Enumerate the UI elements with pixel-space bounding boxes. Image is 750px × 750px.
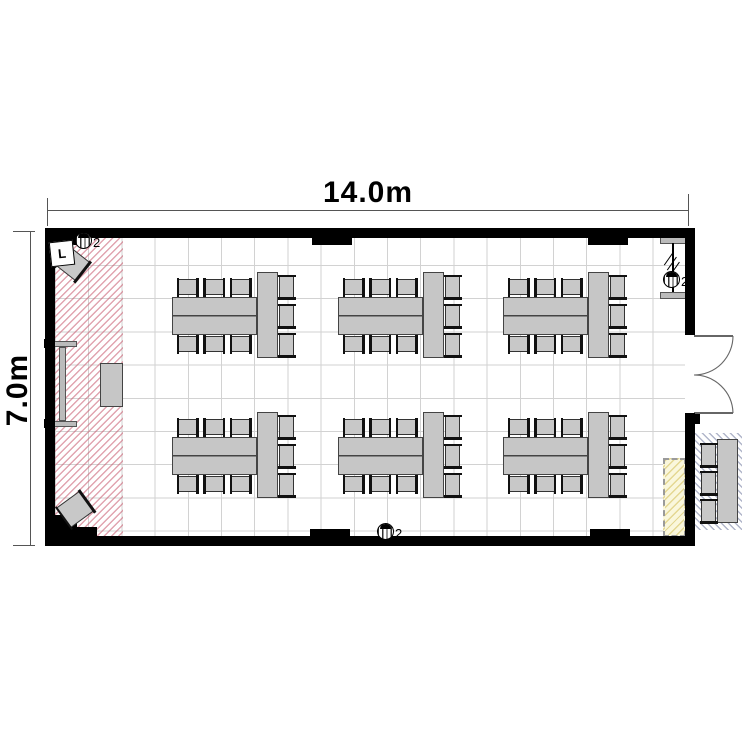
chair (343, 419, 364, 435)
outlet-symbol-bottom: 2 (377, 523, 402, 540)
chair (396, 419, 417, 435)
meeting-table-end (257, 412, 278, 498)
chair (343, 476, 364, 492)
chair (445, 444, 460, 468)
meeting-table-end (588, 272, 609, 358)
chair (370, 476, 391, 492)
top-dimension-line (47, 210, 688, 211)
annex-chair (701, 499, 716, 523)
chair (508, 476, 529, 492)
meeting-table-double (338, 437, 423, 475)
wall-right-lower (685, 413, 695, 546)
meeting-table-end (588, 412, 609, 498)
chair (445, 304, 460, 328)
chair (279, 415, 294, 439)
chair (177, 419, 198, 435)
meeting-table-double (503, 297, 588, 335)
chair (445, 275, 460, 299)
chair (610, 304, 625, 328)
chair (204, 279, 225, 295)
chair (279, 444, 294, 468)
chair (230, 476, 251, 492)
meeting-table-end (423, 412, 444, 498)
chair (445, 415, 460, 439)
chair (535, 336, 556, 352)
chair (396, 476, 417, 492)
wall-pier (312, 228, 352, 245)
chair (343, 279, 364, 295)
chair (279, 304, 294, 328)
meeting-table-double (338, 297, 423, 335)
meeting-table-end (257, 272, 278, 358)
outlet-icon (663, 271, 680, 288)
chair (561, 476, 582, 492)
chair (204, 336, 225, 352)
wall-corner-block (45, 527, 97, 546)
outlet-count: 2 (93, 236, 100, 249)
chair (370, 336, 391, 352)
outlet-icon (377, 523, 394, 540)
chair (610, 415, 625, 439)
chair (204, 476, 225, 492)
chair (535, 476, 556, 492)
chair (177, 476, 198, 492)
chair (508, 336, 529, 352)
chair (204, 419, 225, 435)
chair (535, 279, 556, 295)
meeting-table-double (172, 437, 257, 475)
chair (230, 419, 251, 435)
outlet-symbol-right: 2 (663, 271, 688, 288)
annex-chair (701, 443, 716, 467)
annex-table (717, 439, 738, 523)
chair (279, 333, 294, 357)
chair (396, 336, 417, 352)
left-dimension-tick-top (13, 231, 35, 232)
chair (230, 336, 251, 352)
outlet-icon (75, 232, 92, 249)
corner-unit-box: L (49, 240, 75, 267)
height-dimension-label: 7.0m (1, 340, 33, 440)
chair (370, 419, 391, 435)
chair (508, 279, 529, 295)
podium (100, 363, 123, 407)
chair (610, 275, 625, 299)
left-dimension-tick-bottom (13, 545, 35, 546)
wall-corner-block (688, 414, 700, 424)
chair (535, 419, 556, 435)
chair (177, 279, 198, 295)
chair (445, 473, 460, 497)
chair (445, 333, 460, 357)
chair (279, 473, 294, 497)
meeting-table-double (172, 297, 257, 335)
width-dimension-label: 14.0m (268, 176, 468, 210)
outlet-symbol-top-left: 2 (75, 232, 100, 249)
annex-chair (701, 471, 716, 495)
chair (508, 419, 529, 435)
double-door-swing (685, 325, 745, 425)
top-dimension-tick-right (688, 194, 689, 226)
chair (396, 279, 417, 295)
chair (610, 333, 625, 357)
chair (177, 336, 198, 352)
chair (610, 444, 625, 468)
chair (343, 336, 364, 352)
outlet-count: 2 (681, 275, 688, 288)
wall-pier (310, 529, 350, 546)
meeting-table-double (503, 437, 588, 475)
chair (561, 419, 582, 435)
chair (561, 336, 582, 352)
wall-pier (588, 228, 628, 245)
outlet-count: 2 (395, 527, 402, 540)
top-dimension-tick-left (47, 198, 48, 226)
meeting-table-end (423, 272, 444, 358)
partition-bar (660, 292, 687, 299)
chair (370, 279, 391, 295)
chair (610, 473, 625, 497)
corner-unit-label: L (57, 246, 66, 262)
chair (561, 279, 582, 295)
wall-left (45, 228, 55, 546)
floor-plan-canvas: 14.0m 7.0m L 2 2 2 (0, 0, 750, 750)
chair (279, 275, 294, 299)
whiteboard-bar (59, 347, 66, 421)
chair (230, 279, 251, 295)
side-counter (663, 458, 686, 537)
wall-pier (590, 529, 630, 546)
